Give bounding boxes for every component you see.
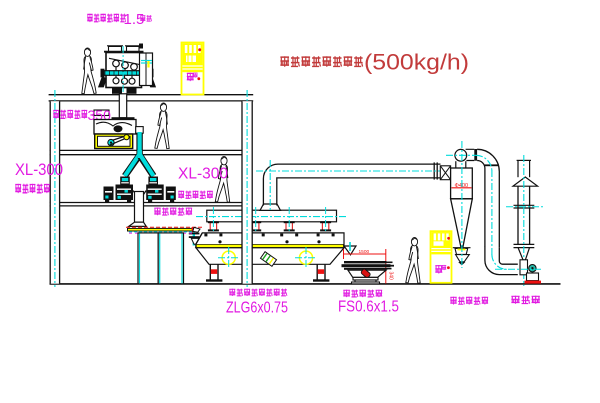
svg-text:1500: 1500 — [359, 249, 370, 255]
svg-text:XL-300: XL-300 — [178, 166, 228, 183]
svg-text:1.5: 1.5 — [124, 11, 145, 28]
svg-text:FS0.6x1.5: FS0.6x1.5 — [338, 299, 399, 316]
svg-text:(500kg/h): (500kg/h) — [364, 50, 469, 75]
svg-text:XL-300: XL-300 — [15, 161, 63, 179]
svg-text:340: 340 — [388, 272, 394, 281]
svg-text:ZLG6x0.75: ZLG6x0.75 — [226, 300, 288, 317]
svg-text:Φ400: Φ400 — [455, 183, 469, 189]
